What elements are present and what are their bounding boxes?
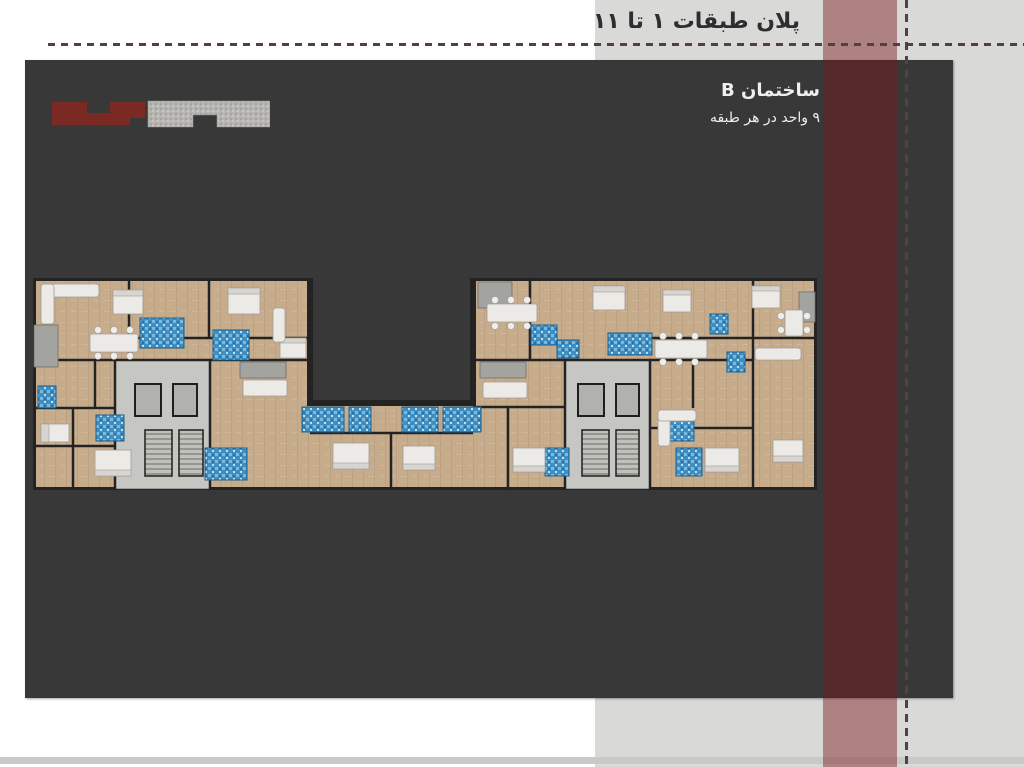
- units-per-floor-label: ٩ واحد در هر طبقه: [710, 110, 820, 126]
- staircase: [179, 430, 203, 476]
- building-label: ساختمان B: [721, 80, 820, 101]
- elevator-shaft: [578, 384, 604, 416]
- horizontal-dashed-guide: [48, 43, 1024, 46]
- staircase: [145, 430, 172, 476]
- slide-content-area: ساختمان B ٩ واحد در هر طبقه: [25, 60, 953, 698]
- elevator-shaft: [173, 384, 197, 416]
- building-b-footprint: [52, 102, 145, 125]
- staircase: [616, 430, 639, 476]
- key-plan-thumbnail: [52, 100, 270, 130]
- elevator-shaft: [135, 384, 161, 416]
- staircase: [582, 430, 609, 476]
- elevator-shaft: [616, 384, 639, 416]
- page-title: پلان طبقات ١ تا ١١: [593, 9, 800, 34]
- right-core: [565, 360, 650, 490]
- building-a-footprint: [148, 101, 270, 127]
- floor-plan: [33, 278, 817, 490]
- vertical-dashed-guide: [905, 0, 908, 767]
- accent-stripe: [823, 0, 897, 767]
